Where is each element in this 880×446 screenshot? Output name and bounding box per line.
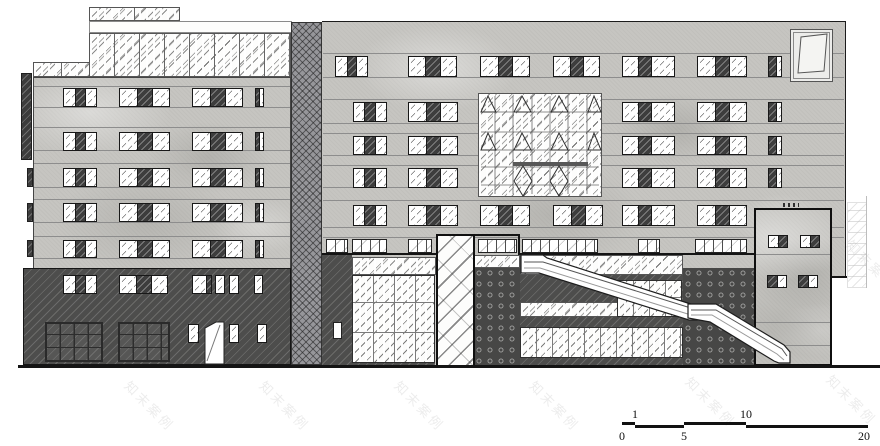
scale-bar-tick-label: 1 xyxy=(632,407,638,422)
watermark-text: 知末案例 xyxy=(823,370,880,429)
right-annex-faint xyxy=(847,202,867,288)
window-group xyxy=(119,275,168,294)
glass-pane xyxy=(776,57,781,76)
glass-pane xyxy=(152,241,169,257)
dark-pane xyxy=(137,241,152,257)
glass-pane xyxy=(85,169,96,186)
glass-pane xyxy=(354,103,364,121)
window-group xyxy=(257,324,267,343)
glass-pane xyxy=(583,57,599,76)
glass-pane xyxy=(193,241,210,257)
window-group xyxy=(353,102,387,122)
glass-pane xyxy=(512,206,529,225)
glass-pane xyxy=(512,57,529,76)
floor-line xyxy=(34,107,290,108)
glass-pane xyxy=(698,137,715,154)
window-group xyxy=(408,205,458,226)
window-group xyxy=(255,88,264,107)
window-group xyxy=(255,240,264,258)
glass-pane xyxy=(440,137,457,154)
window-group xyxy=(119,132,170,151)
glass-pane xyxy=(259,241,263,257)
floor-line xyxy=(34,187,290,188)
glass-pane xyxy=(440,169,457,187)
window-group xyxy=(480,56,530,77)
glass-pane xyxy=(354,169,364,187)
glass-pane xyxy=(440,206,457,225)
glass-pane xyxy=(585,206,602,225)
glass-pane xyxy=(225,241,242,257)
dark-pane xyxy=(347,57,356,76)
window-group xyxy=(767,275,787,288)
glass-pane xyxy=(354,206,364,225)
glass-pane xyxy=(259,204,263,221)
glass-pane xyxy=(193,89,210,106)
dark-pane xyxy=(769,103,776,121)
glass-pane xyxy=(354,137,364,154)
window-group xyxy=(63,275,97,294)
dark-pane xyxy=(426,103,440,121)
glass-pane xyxy=(729,169,746,187)
glass-pane xyxy=(481,206,498,225)
box-vent-ticks xyxy=(783,203,799,207)
glass-pane xyxy=(777,276,786,287)
glass-pane xyxy=(729,103,746,121)
dark-pane xyxy=(769,137,776,154)
glass-pane xyxy=(698,169,715,187)
glass-pane xyxy=(64,89,75,106)
glass-pane xyxy=(375,103,386,121)
ground-line xyxy=(18,365,880,368)
window-group xyxy=(192,275,212,294)
glass-pane xyxy=(152,169,169,186)
scale-bar-segment xyxy=(622,422,635,425)
dark-pane xyxy=(799,276,808,287)
dark-pane xyxy=(364,103,375,121)
dark-pane xyxy=(75,89,85,106)
dark-pane xyxy=(75,241,85,257)
glass-pane xyxy=(375,137,386,154)
dark-pane xyxy=(715,206,729,225)
glass-pane xyxy=(651,57,674,76)
window-group xyxy=(768,56,782,77)
window-group xyxy=(63,88,97,107)
watermark-text: 知末案例 xyxy=(526,376,585,435)
window-group xyxy=(697,136,747,155)
glass-pane xyxy=(230,325,238,342)
glass-pane xyxy=(193,276,206,293)
watermark-text: 知末案例 xyxy=(256,376,315,435)
storefront-grid-2 xyxy=(118,322,170,362)
dark-pane xyxy=(210,89,225,106)
clerestory-window xyxy=(326,239,348,253)
glass-pane xyxy=(85,133,96,150)
entry-box xyxy=(754,208,832,366)
glass-pane xyxy=(120,204,137,221)
glass-pane xyxy=(225,204,242,221)
upper-glass-band xyxy=(89,33,291,77)
scale-bar-segment xyxy=(746,425,868,428)
glass-pane xyxy=(651,206,674,225)
glass-pane xyxy=(120,133,137,150)
window-group xyxy=(192,88,243,107)
scale-bar-tick-label: 10 xyxy=(740,407,752,422)
gf-big-glazing xyxy=(352,275,435,363)
dark-pane xyxy=(769,169,776,187)
gf-glass-block xyxy=(617,280,682,317)
glass-pane xyxy=(375,169,386,187)
glass-pane xyxy=(698,206,715,225)
glass-pane xyxy=(409,137,426,154)
glass-pane xyxy=(769,236,778,247)
gf-light-band-1 xyxy=(352,257,436,275)
window-group xyxy=(119,168,170,187)
glass-pane xyxy=(409,57,425,76)
window-group xyxy=(353,205,387,226)
scale-bar-segment xyxy=(684,422,746,425)
glass-pane xyxy=(409,206,426,225)
curtainwall-feature-frame xyxy=(478,93,602,197)
window-group xyxy=(622,136,675,155)
dark-pane xyxy=(638,206,651,225)
gf-dot-panel-2 xyxy=(683,268,755,365)
glass-pane xyxy=(729,206,746,225)
floor-line xyxy=(34,199,290,200)
window-group xyxy=(254,275,263,294)
window-group xyxy=(697,205,747,226)
dark-pane xyxy=(364,137,375,154)
dark-pane xyxy=(137,133,152,150)
glass-pane xyxy=(375,206,386,225)
window-group xyxy=(697,56,747,77)
gf-small-door xyxy=(333,322,342,339)
glass-pane xyxy=(225,89,242,106)
glass-pane xyxy=(623,103,638,121)
roof-glass-strip xyxy=(89,7,180,21)
glass-pane xyxy=(623,169,638,187)
clerestory-window xyxy=(352,239,387,253)
glass-pane xyxy=(193,133,210,150)
glass-pane xyxy=(120,169,137,186)
glass-pane xyxy=(729,57,746,76)
clerestory-window xyxy=(638,239,660,253)
glass-pane xyxy=(259,133,263,150)
glass-pane xyxy=(554,206,571,225)
dark-pane xyxy=(210,169,225,186)
window-group xyxy=(229,324,239,343)
dark-pane xyxy=(210,241,225,257)
dark-pane xyxy=(638,169,651,187)
glass-pane xyxy=(85,89,96,106)
floor-line xyxy=(34,222,290,223)
window-group xyxy=(768,168,782,188)
window-group xyxy=(192,132,243,151)
glass-pane xyxy=(152,133,169,150)
glass-pane xyxy=(481,57,498,76)
dark-pane xyxy=(75,169,85,186)
dark-pane xyxy=(425,57,439,76)
dark-pane xyxy=(498,206,512,225)
glass-pane xyxy=(651,103,674,121)
glass-pane xyxy=(193,204,210,221)
window-group xyxy=(622,205,675,226)
floor-line xyxy=(34,127,290,128)
glass-pane xyxy=(259,169,263,186)
window-group xyxy=(63,168,97,187)
glass-pane xyxy=(336,57,347,76)
glass-pane xyxy=(120,276,136,293)
glass-pane xyxy=(776,137,781,154)
box-floor-line xyxy=(756,345,830,346)
window-group xyxy=(622,102,675,122)
glass-pane xyxy=(255,276,262,293)
window-group xyxy=(480,205,530,226)
window-group xyxy=(255,132,264,151)
left-side-fin xyxy=(21,73,32,160)
glass-pane xyxy=(440,57,456,76)
gf-glass-tower xyxy=(436,234,475,365)
glass-pane xyxy=(64,241,75,257)
dark-pane xyxy=(638,137,651,154)
dark-pane xyxy=(210,204,225,221)
gf-wall-left xyxy=(322,255,352,365)
gf-light-band-1b xyxy=(474,255,520,268)
window-group xyxy=(622,168,675,188)
glass-pane xyxy=(623,137,638,154)
glass-pane xyxy=(729,137,746,154)
dark-pane xyxy=(715,137,729,154)
floor-line xyxy=(323,53,844,54)
watermark-text: 知末案例 xyxy=(121,376,180,435)
window-group xyxy=(408,102,458,122)
glass-pane xyxy=(64,204,75,221)
glass-pane xyxy=(152,89,169,106)
gf-glazing-row xyxy=(520,327,683,358)
scale-bar-tick-label: 20 xyxy=(858,429,870,444)
window-group xyxy=(697,102,747,122)
dark-pane xyxy=(426,206,440,225)
dark-pane xyxy=(715,57,729,76)
upper-glass-band-left xyxy=(33,62,90,77)
window-group xyxy=(192,203,243,222)
dark-pane xyxy=(426,169,440,187)
gf-under-strip-2 xyxy=(520,358,683,365)
dark-pane xyxy=(75,204,85,221)
floor-line xyxy=(34,86,290,87)
dark-pane xyxy=(769,57,776,76)
glass-pane xyxy=(776,169,781,187)
glass-pane xyxy=(258,325,266,342)
window-group xyxy=(798,275,818,288)
gf-dot-panel-1 xyxy=(474,268,520,365)
dark-pane xyxy=(364,206,375,225)
box-floor-line xyxy=(756,254,830,255)
scale-bar-tick-label: 0 xyxy=(619,429,625,444)
clerestory-window xyxy=(522,239,598,253)
glass-pane xyxy=(651,169,674,187)
clerestory-window xyxy=(695,239,747,253)
dark-pane xyxy=(136,276,150,293)
clerestory-window xyxy=(408,239,432,253)
floor-line xyxy=(34,258,290,259)
glass-pane xyxy=(193,169,210,186)
window-group xyxy=(188,324,199,343)
dark-pane xyxy=(715,169,729,187)
window-group xyxy=(255,168,264,187)
window-group xyxy=(768,136,782,155)
dark-pane xyxy=(75,133,85,150)
glass-pane xyxy=(356,57,367,76)
glass-pane xyxy=(64,133,75,150)
glass-pane xyxy=(230,276,238,293)
dark-pane xyxy=(210,133,225,150)
glass-pane xyxy=(808,276,817,287)
glass-pane xyxy=(85,204,96,221)
gf-dark-band-2 xyxy=(520,317,683,327)
glass-pane xyxy=(776,103,781,121)
glass-pane xyxy=(64,169,75,186)
window-group xyxy=(192,168,243,187)
right-annex-line xyxy=(866,196,867,288)
dark-pane xyxy=(75,276,85,293)
floor-line xyxy=(323,77,844,78)
dark-pane xyxy=(638,103,651,121)
scale-bar-tick-label: 5 xyxy=(681,429,687,444)
window-group xyxy=(353,136,387,155)
window-group xyxy=(215,275,225,294)
glass-pane xyxy=(801,236,810,247)
glass-pane xyxy=(440,103,457,121)
glass-pane xyxy=(409,169,426,187)
glass-pane xyxy=(151,276,167,293)
window-group xyxy=(119,88,170,107)
right-step-line xyxy=(830,276,847,278)
glass-pane xyxy=(216,276,224,293)
window-group xyxy=(63,203,97,222)
floor-line xyxy=(323,200,844,201)
window-group xyxy=(353,168,387,188)
dark-pane xyxy=(768,276,777,287)
window-group xyxy=(408,168,458,188)
dark-pane xyxy=(426,137,440,154)
glass-pane xyxy=(225,133,242,150)
floor-line xyxy=(34,236,290,237)
window-group xyxy=(768,102,782,122)
dark-pane xyxy=(364,169,375,187)
dark-pane xyxy=(778,236,787,247)
dark-pane xyxy=(137,89,152,106)
box-floor-line xyxy=(756,322,830,323)
dark-pane xyxy=(638,57,651,76)
scale-bar-segment xyxy=(635,425,684,428)
dark-pane xyxy=(715,103,729,121)
window-group xyxy=(192,240,243,258)
window-group xyxy=(622,56,675,77)
window-group xyxy=(768,235,788,248)
gf-light-band-2 xyxy=(520,255,683,275)
window-group xyxy=(697,168,747,188)
window-group xyxy=(335,56,368,77)
glass-pane xyxy=(623,57,638,76)
glass-pane xyxy=(651,137,674,154)
window-group xyxy=(229,275,239,294)
watermark-text: 知末案例 xyxy=(391,376,450,435)
elevation-canvas: 知末案例知末案例知末案例知末案例知末案例知末案例知末案例知末案例知末案例知末案例… xyxy=(0,0,880,446)
roof-white-band xyxy=(89,21,292,33)
glass-pane xyxy=(120,89,137,106)
window-group xyxy=(63,132,97,151)
link-tower xyxy=(291,22,322,365)
window-group xyxy=(119,203,170,222)
dark-pane xyxy=(498,57,512,76)
dark-pane xyxy=(571,206,585,225)
glass-pane xyxy=(409,103,426,121)
glass-pane xyxy=(120,241,137,257)
window-group xyxy=(408,56,457,77)
glass-pane xyxy=(698,57,715,76)
window-group xyxy=(553,205,603,226)
glass-pane xyxy=(85,276,96,293)
clerestory-window xyxy=(478,239,517,253)
window-group xyxy=(408,136,458,155)
dark-pane xyxy=(810,236,819,247)
window-group xyxy=(255,203,264,222)
floor-line xyxy=(34,163,290,164)
glass-pane xyxy=(85,241,96,257)
window-group xyxy=(63,240,97,258)
window-group xyxy=(553,56,600,77)
dark-pane xyxy=(137,204,152,221)
window-group xyxy=(119,240,170,258)
window-group xyxy=(800,235,820,248)
dark-pane xyxy=(206,276,211,293)
storefront-grid-1 xyxy=(45,322,103,362)
glass-pane xyxy=(225,169,242,186)
dark-pane xyxy=(570,57,584,76)
roof-detail-panel xyxy=(790,29,833,82)
glass-pane xyxy=(152,204,169,221)
glass-pane xyxy=(64,276,75,293)
glass-pane xyxy=(554,57,570,76)
glass-pane xyxy=(698,103,715,121)
glass-pane xyxy=(189,325,198,342)
glass-pane xyxy=(259,89,263,106)
glass-pane xyxy=(623,206,638,225)
dark-pane xyxy=(137,169,152,186)
